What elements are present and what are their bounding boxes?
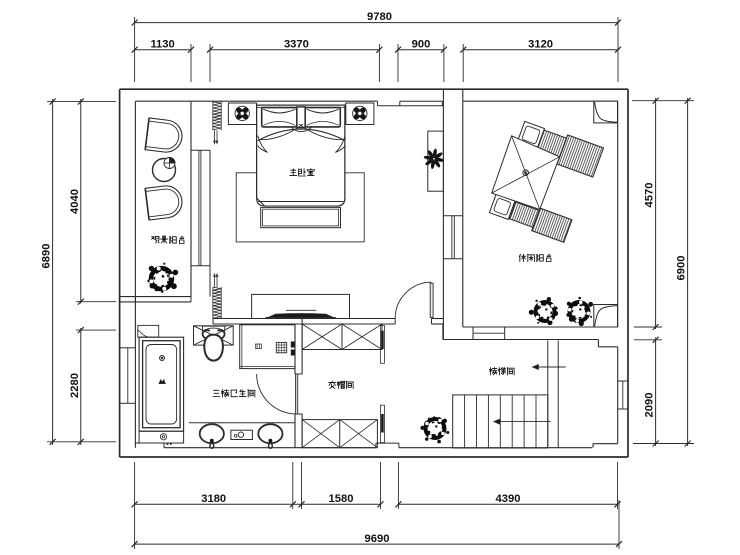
- svg-text:3120: 3120: [528, 38, 553, 50]
- svg-text:4390: 4390: [496, 493, 521, 505]
- svg-text:1580: 1580: [329, 493, 354, 505]
- svg-text:3180: 3180: [201, 493, 226, 505]
- svg-text:900: 900: [412, 38, 431, 50]
- svg-text:4040: 4040: [69, 189, 81, 214]
- svg-text:9780: 9780: [367, 11, 392, 23]
- svg-text:6890: 6890: [41, 244, 53, 269]
- svg-text:6900: 6900: [676, 256, 688, 281]
- svg-text:3370: 3370: [284, 38, 309, 50]
- svg-text:2280: 2280: [69, 373, 81, 398]
- svg-text:4570: 4570: [644, 183, 656, 208]
- svg-text:1130: 1130: [150, 38, 174, 50]
- svg-text:2090: 2090: [644, 393, 656, 418]
- svg-text:9690: 9690: [365, 533, 390, 545]
